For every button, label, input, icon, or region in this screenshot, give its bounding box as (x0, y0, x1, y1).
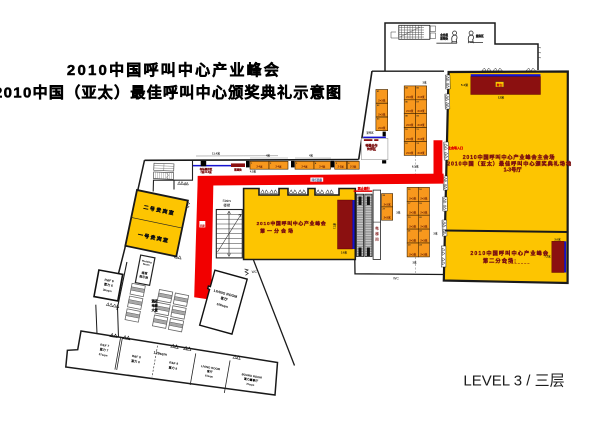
svg-text:7米×0.6米: 7米×0.6米 (200, 170, 212, 174)
svg-text:5.4米: 5.4米 (461, 82, 469, 87)
svg-text:2×3米: 2×3米 (406, 109, 413, 113)
svg-text:3米: 3米 (396, 211, 400, 215)
svg-text:7.2米: 7.2米 (544, 255, 551, 259)
svg-text:2×3米: 2×3米 (378, 112, 385, 116)
svg-text:2×3米: 2×3米 (418, 137, 425, 141)
svg-text:电: 电 (375, 226, 379, 231)
svg-text:舞台: 舞台 (497, 82, 503, 87)
svg-text:2×3米: 2×3米 (384, 202, 391, 206)
svg-text:2-4米: 2-4米 (275, 165, 282, 169)
svg-text:2×3米: 2×3米 (409, 211, 416, 215)
svg-text:2×3米: 2×3米 (418, 95, 425, 99)
svg-text:LEVEL 3 / 三层: LEVEL 3 / 三层 (463, 373, 564, 390)
svg-text:2-4米: 2-4米 (319, 165, 326, 169)
svg-text:2010中国呼叫中心产业峰会主会场: 2010中国呼叫中心产业峰会主会场 (463, 153, 556, 161)
svg-text:2010中国呼叫中心产业峰会: 2010中国呼叫中心产业峰会 (67, 61, 281, 79)
svg-text:2×3米: 2×3米 (420, 225, 427, 229)
svg-text:2×3米: 2×3米 (420, 197, 427, 201)
svg-text:2×3米: 2×3米 (418, 109, 425, 113)
svg-text:7.2米: 7.2米 (332, 222, 336, 229)
svg-text:2×3米: 2×3米 (409, 238, 416, 242)
svg-text:2-3米: 2-3米 (338, 165, 345, 169)
svg-text:报到处: 报到处 (440, 36, 448, 40)
svg-text:2010中国（亚太）最佳呼叫中心颁奖典礼场地: 2010中国（亚太）最佳呼叫中心颁奖典礼场地 (447, 159, 572, 167)
svg-text:4米: 4米 (266, 154, 270, 158)
svg-text:2×3米: 2×3米 (409, 252, 416, 256)
svg-text:2010中国呼叫中心产业峰会: 2010中国呼叫中心产业峰会 (470, 249, 549, 257)
svg-text:4米: 4米 (309, 154, 313, 158)
svg-text:2010中国呼叫中心产业峰会: 2010中国呼叫中心产业峰会 (257, 220, 327, 227)
svg-text:梯: 梯 (375, 231, 379, 236)
svg-text:2×3米: 2×3米 (406, 137, 413, 141)
svg-text:1-3号厅: 1-3号厅 (504, 166, 523, 174)
svg-text:3米: 3米 (422, 80, 426, 84)
svg-text:媒体区: 媒体区 (475, 34, 484, 38)
svg-text:2×3米: 2×3米 (409, 197, 416, 201)
svg-text:2×3米: 2×3米 (406, 95, 413, 99)
svg-text:2-4米: 2-4米 (301, 165, 308, 169)
svg-text:2×3米: 2×3米 (418, 123, 425, 127)
svg-text:电梯: 电梯 (152, 303, 158, 308)
svg-text:4.5米: 4.5米 (250, 170, 257, 174)
svg-text:3.6米: 3.6米 (554, 237, 561, 241)
svg-text:暨2010中国（亚太）最佳呼叫中心颁奖典礼示意图: 暨2010中国（亚太）最佳呼叫中心颁奖典礼示意图 (0, 84, 342, 102)
svg-text:禁止通行: 禁止通行 (358, 185, 370, 190)
svg-text:签到处: 签到处 (233, 167, 242, 171)
svg-text:6.3米: 6.3米 (412, 165, 419, 169)
svg-text:11.4米: 11.4米 (212, 152, 220, 156)
svg-text:伙伴区: 伙伴区 (367, 146, 376, 151)
svg-text:3米: 3米 (433, 231, 437, 235)
svg-text:2×3米: 2×3米 (384, 216, 391, 220)
svg-text:酒店: 酒店 (152, 298, 158, 303)
svg-text:WC: WC (393, 276, 399, 280)
svg-text:间: 间 (375, 236, 379, 241)
svg-text:2×3米: 2×3米 (418, 151, 425, 155)
svg-text:大堂: 大堂 (152, 307, 158, 312)
svg-text:3米: 3米 (412, 261, 416, 265)
svg-text:2×3米: 2×3米 (406, 151, 413, 155)
svg-text:宣传区: 宣传区 (366, 131, 374, 135)
svg-text:2×3米: 2×3米 (420, 238, 427, 242)
svg-text:Stairs: Stairs (222, 199, 231, 203)
svg-text:2×3米: 2×3米 (420, 252, 427, 256)
svg-text:3.6米: 3.6米 (341, 250, 348, 254)
svg-text:2-3米: 2-3米 (350, 165, 357, 169)
svg-text:2×3米: 2×3米 (420, 211, 427, 215)
svg-text:2×3米: 2×3米 (409, 225, 416, 229)
svg-text:12米: 12米 (498, 94, 505, 99)
svg-text:2×3米: 2×3米 (378, 126, 385, 130)
svg-text:西廊: 西廊 (200, 224, 205, 228)
svg-text:2×3米: 2×3米 (378, 99, 385, 103)
svg-text:WC: WC (252, 270, 258, 274)
svg-text:同乐西廊: 同乐西廊 (312, 178, 323, 182)
svg-text:第一分会场: 第一分会场 (260, 228, 295, 235)
svg-text:2-4米: 2-4米 (256, 165, 263, 169)
svg-text:2×3米: 2×3米 (406, 123, 413, 127)
svg-text:主会场入口: 主会场入口 (448, 145, 463, 150)
svg-text:楼梯: 楼梯 (223, 203, 230, 208)
